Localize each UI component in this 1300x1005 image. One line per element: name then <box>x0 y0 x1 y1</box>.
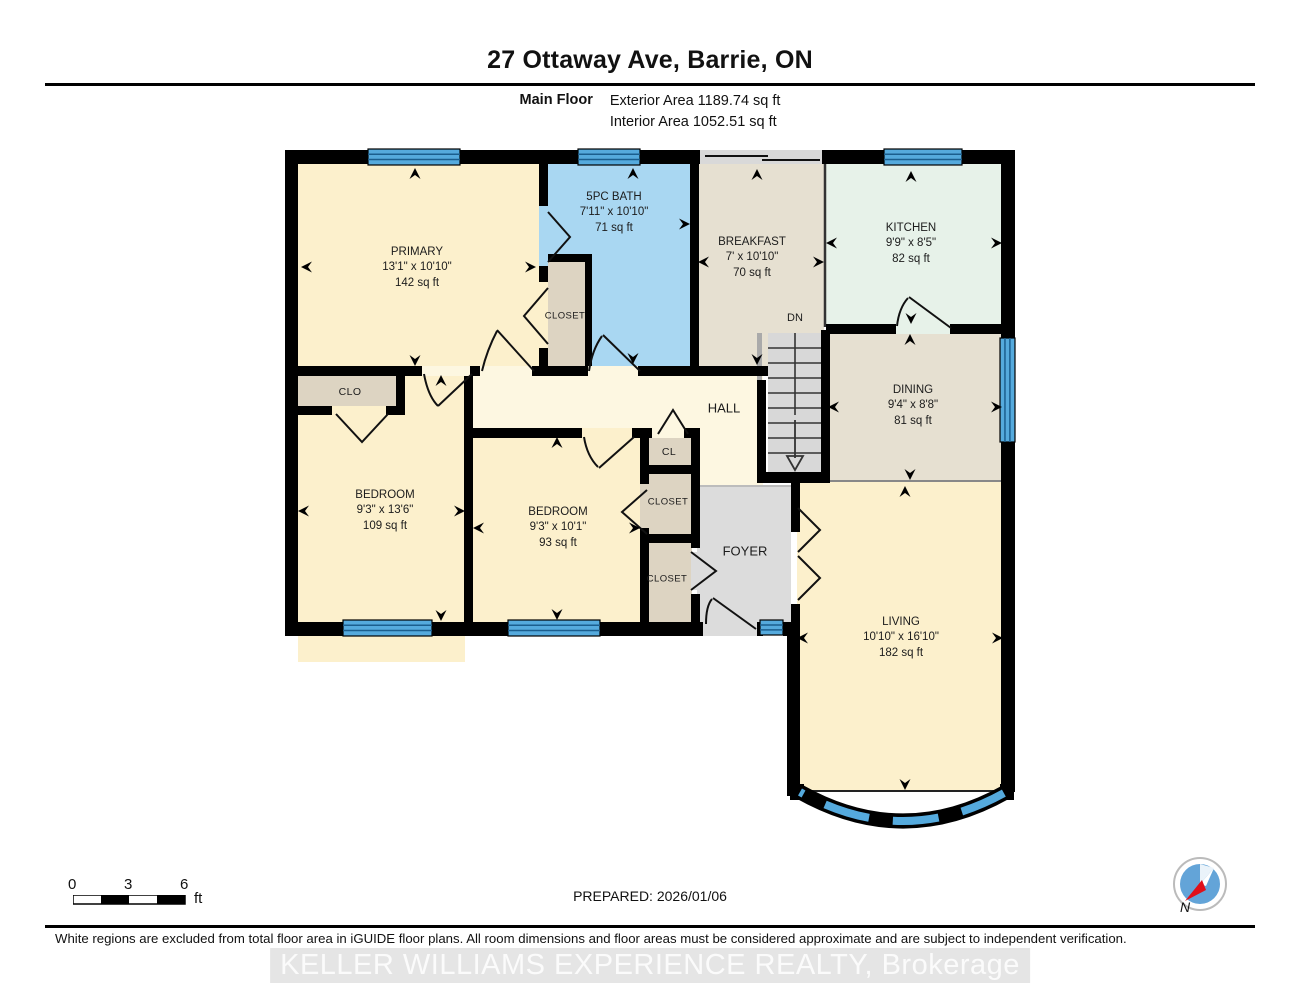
room-label-primary: PRIMARY13'1" x 10'10"142 sq ft <box>382 245 451 291</box>
footer-divider <box>45 925 1255 928</box>
hall-area-2 <box>697 432 763 486</box>
label-closet-upper: CLOSET <box>648 497 688 508</box>
floor-plan-page: 27 Ottaway Ave, Barrie, ON Main Floor Ex… <box>0 0 1300 1005</box>
room-label-living: LIVING10'10" x 16'10"182 sq ft <box>863 615 939 661</box>
room-bedroom-left-top <box>404 375 465 415</box>
room-label-bedroom-left: BEDROOM9'3" x 13'6"109 sq ft <box>355 488 414 534</box>
room-foyer <box>697 486 791 632</box>
room-label-bath: 5PC BATH7'11" x 10'10"71 sq ft <box>580 190 649 236</box>
disclaimer-text: White regions are excluded from total fl… <box>55 931 1127 946</box>
label-foyer: FOYER <box>723 544 768 559</box>
room-label-kitchen: KITCHEN9'9" x 8'5"82 sq ft <box>886 221 936 267</box>
label-clo: CLO <box>339 386 362 398</box>
label-cl: CL <box>662 446 676 458</box>
compass-north-label: N <box>1180 899 1190 915</box>
label-closet-lower: CLOSET <box>647 574 687 585</box>
brokerage-watermark: KELLER WILLIAMS EXPERIENCE REALTY, Broke… <box>270 948 1030 983</box>
label-closet-primary: CLOSET <box>545 311 585 322</box>
room-label-breakfast: BREAKFAST7' x 10'10"70 sq ft <box>718 235 786 281</box>
label-dn: DN <box>787 312 803 324</box>
label-hall: HALL <box>708 401 741 416</box>
room-label-bedroom-right: BEDROOM9'3" x 10'1"93 sq ft <box>528 505 587 551</box>
room-bath-lower <box>592 260 690 370</box>
room-label-dining: DINING9'4" x 8'8"81 sq ft <box>888 383 938 429</box>
prepared-date: PREPARED: 2026/01/06 <box>0 888 1300 904</box>
